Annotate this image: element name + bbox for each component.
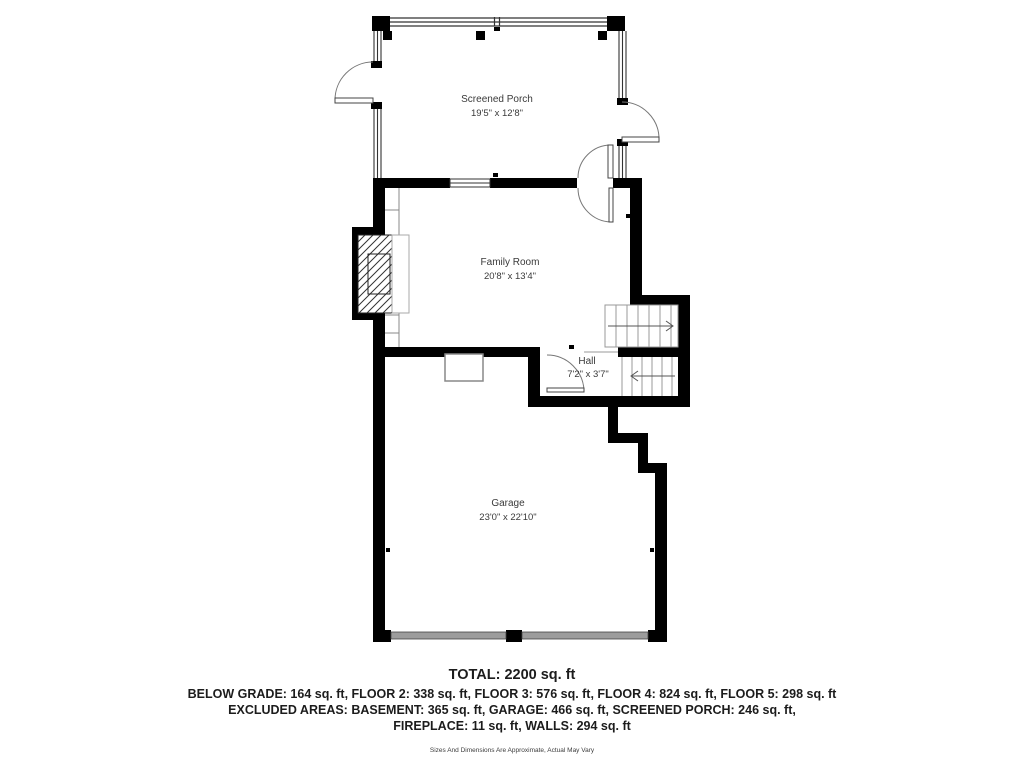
garage-door-band [522,632,648,639]
porch-post [598,31,607,40]
door-leaf [622,137,659,142]
porch-mullion-mark [494,27,500,31]
fireplace [352,227,409,320]
door-leaf [547,388,584,392]
wall-right [630,178,642,305]
stairs-up-direction-arrow [608,321,673,331]
porch-screen-wall-top [390,17,607,26]
porch-corner-post [372,16,390,31]
family-room-walls [373,178,642,642]
porch-post [476,31,485,40]
disclaimer-text: Sizes And Dimensions Are Approximate, Ac… [0,747,1024,754]
floor-plan-page: Screened Porch 19'5" x 12'8" Family Room… [0,0,1024,768]
garage-fixture [445,354,483,381]
door-leaf [608,145,613,178]
family-room-window [450,179,490,187]
porch-post [383,31,392,40]
room-labels: Screened Porch 19'5" x 12'8" Family Room… [461,94,609,523]
door-stop-mark [493,173,498,177]
door-stop-mark [569,345,574,349]
porch-corner-post [607,16,625,31]
room-label-screened-porch: Screened Porch [461,94,533,105]
porch-door-right [622,102,659,142]
room-dimensions-family-room: 20'8" x 13'4" [484,271,536,282]
fireplace-hearth [392,235,409,313]
room-label-family-room: Family Room [481,257,540,268]
stairs-down-direction-arrow [631,371,675,381]
room-dimensions-screened-porch: 19'5" x 12'8" [471,108,523,119]
wall [618,347,680,357]
room-label-garage: Garage [491,498,525,509]
garage-door-band [391,632,506,639]
door-leaf [609,188,613,222]
family-room-door [578,188,613,222]
wall-mark [650,548,654,552]
fireplace-masonry [358,235,392,313]
room-dimensions-hall: 7'2" x 3'7" [567,369,609,380]
wall [490,178,577,188]
total-area-text: TOTAL: 2200 sq. ft [0,667,1024,683]
wall-mark [386,548,390,552]
wall-right [655,463,667,642]
door-stop-mark [626,214,630,218]
wall-corner [373,630,391,642]
stairs-walls [618,295,690,407]
door-jamb [617,98,628,105]
floor-areas-text: BELOW GRADE: 164 sq. ft, FLOOR 2: 338 sq… [0,687,1024,701]
door-leaf [335,98,373,103]
room-dimensions-garage: 23'0" x 22'10" [479,512,536,523]
room-label-hall: Hall [578,356,595,367]
porch-door-left [335,62,373,103]
porch-interior-door [578,145,613,178]
wall-corner [648,630,667,642]
excluded-areas-text: EXCLUDED AREAS: BASEMENT: 365 sq. ft, GA… [0,703,1024,717]
wall-center-post [506,630,522,642]
floor-plan-canvas: Screened Porch 19'5" x 12'8" Family Room… [0,0,1024,768]
excluded-areas-text-2: FIREPLACE: 11 sq. ft, WALLS: 294 sq. ft [0,719,1024,733]
